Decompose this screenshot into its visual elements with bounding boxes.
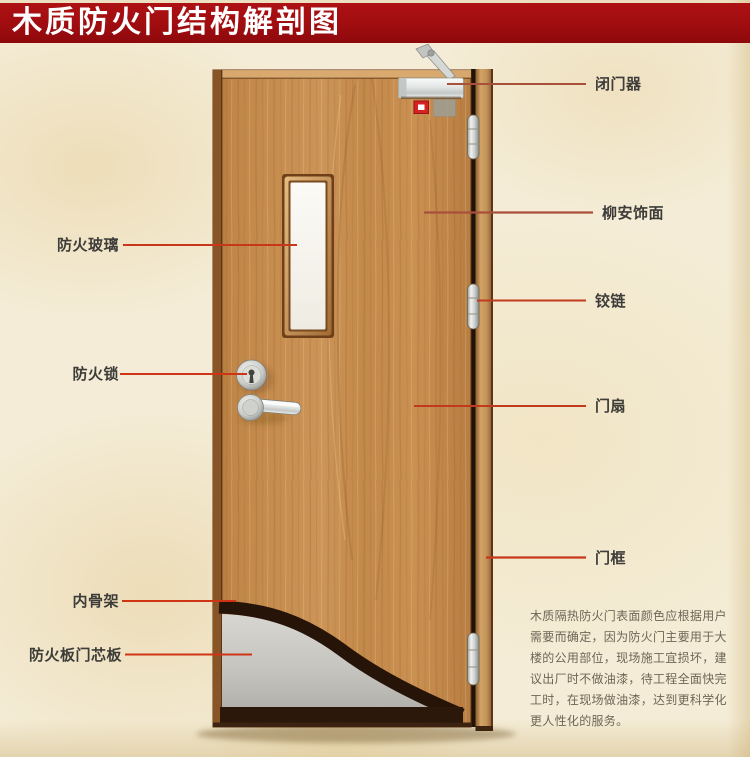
fire-glass bbox=[291, 183, 326, 330]
hinge-top bbox=[468, 115, 480, 159]
description-line: 工时，在现场做油漆，达到更科学化 bbox=[530, 690, 735, 711]
vision-panel bbox=[282, 174, 334, 338]
label-inner-skeleton: 内骨架 bbox=[0, 592, 119, 610]
label-fire-board-core: 防火板门芯板 bbox=[0, 646, 122, 664]
description-line: 木质隔热防火门表面颜色应根据用户 bbox=[530, 606, 735, 627]
label-lauan-veneer: 柳安饰面 bbox=[602, 204, 664, 222]
label-door-frame: 门框 bbox=[595, 549, 626, 567]
door-left-edge bbox=[213, 70, 222, 727]
label-door-leaf: 门扇 bbox=[595, 397, 626, 415]
description-text: 木质隔热防火门表面颜色应根据用户 需要而确定，因为防火门主要用于大 楼的公用部位… bbox=[530, 606, 735, 732]
hinge-middle bbox=[468, 284, 480, 329]
door-top-edge bbox=[213, 70, 471, 78]
description-line: 议出厂时不做油漆，待工程全面快完 bbox=[530, 669, 735, 690]
label-fire-lock: 防火锁 bbox=[0, 365, 119, 383]
description-line: 需要而确定，因为防火门主要用于大 bbox=[530, 627, 735, 648]
page: 木质防火门结构解剖图 bbox=[0, 0, 750, 757]
door-closer-body bbox=[399, 78, 464, 98]
description-line: 楼的公用部位，现场施工宜损坏，建 bbox=[530, 648, 735, 669]
label-door-closer: 闭门器 bbox=[595, 75, 642, 93]
door-gap bbox=[471, 69, 476, 727]
door-frame bbox=[476, 69, 494, 731]
hinge-bottom bbox=[468, 633, 480, 685]
description-line: 更人性化的服务。 bbox=[530, 711, 735, 732]
label-hinge: 铰链 bbox=[595, 292, 626, 310]
closer-plate bbox=[434, 100, 456, 117]
label-fire-glass: 防火玻璃 bbox=[0, 236, 119, 254]
door-shadow bbox=[196, 725, 516, 743]
